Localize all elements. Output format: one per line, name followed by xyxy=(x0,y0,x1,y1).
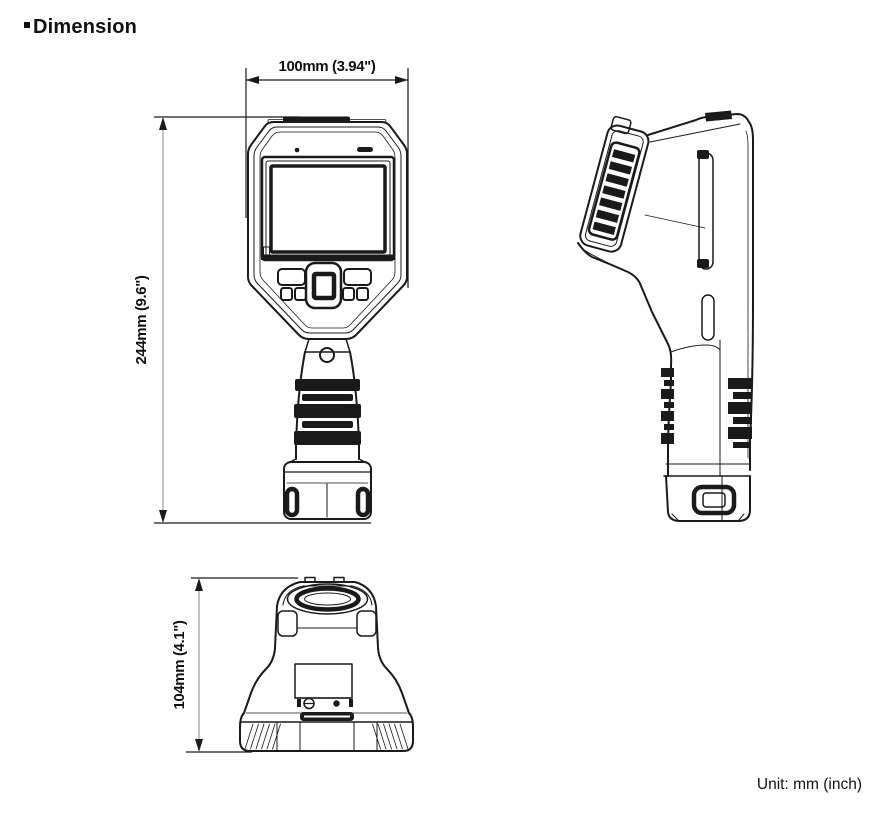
battery-latch-left xyxy=(287,489,297,515)
hatch-right xyxy=(373,724,409,749)
led-indicator xyxy=(295,148,300,153)
side-battery-base xyxy=(664,464,750,521)
depth-arrow-bottom xyxy=(195,739,203,752)
unit-note: Unit: mm (inch) xyxy=(757,776,862,794)
battery-base xyxy=(284,459,371,519)
grip-ribs xyxy=(294,379,361,445)
width-arrow-left xyxy=(246,76,259,84)
depth-extension-lines xyxy=(186,578,298,752)
top-nub xyxy=(705,111,732,122)
battery-release-button xyxy=(694,487,734,513)
trigger-profile xyxy=(578,243,671,476)
depth-arrow-top xyxy=(195,578,203,591)
left-function-button xyxy=(278,269,305,285)
width-arrow-right xyxy=(395,76,408,84)
flange-left xyxy=(278,611,297,636)
height-dimension-label: 244mm (9.6") xyxy=(133,275,150,364)
neck xyxy=(305,339,350,352)
flange-right xyxy=(357,611,376,636)
mounting-plate xyxy=(295,664,352,698)
button-cluster xyxy=(278,263,371,308)
screen-bezel xyxy=(262,157,394,260)
front-view xyxy=(248,117,407,520)
height-arrow-bottom xyxy=(159,510,167,523)
strap-bracket-upper xyxy=(699,153,713,269)
right-function-button xyxy=(344,269,371,285)
dpad-ok-button xyxy=(314,274,334,298)
strap-bracket-lower xyxy=(702,295,714,340)
battery-latch-right xyxy=(358,489,368,515)
speaker-slot xyxy=(357,147,373,152)
lens-housing xyxy=(578,115,653,253)
side-back-grip-ribs xyxy=(728,378,752,448)
width-dimension-label: 100mm (3.94") xyxy=(279,58,376,75)
height-arrow-top xyxy=(159,117,167,130)
depth-dimension-label: 104mm (4.1") xyxy=(171,620,188,709)
lens-opening xyxy=(297,589,359,610)
handle-screw xyxy=(320,348,334,362)
side-view xyxy=(578,111,753,522)
dimension-diagram: 100mm (3.94") 244mm (9.6") 104mm (4.1") xyxy=(0,0,893,825)
hatch-left xyxy=(245,724,281,749)
bottom-view xyxy=(240,578,413,752)
depth-dimension: 104mm (4.1") xyxy=(171,578,298,752)
tripod-hole xyxy=(333,700,339,706)
screen xyxy=(271,166,385,252)
dimension-page: Dimension xyxy=(0,0,893,825)
